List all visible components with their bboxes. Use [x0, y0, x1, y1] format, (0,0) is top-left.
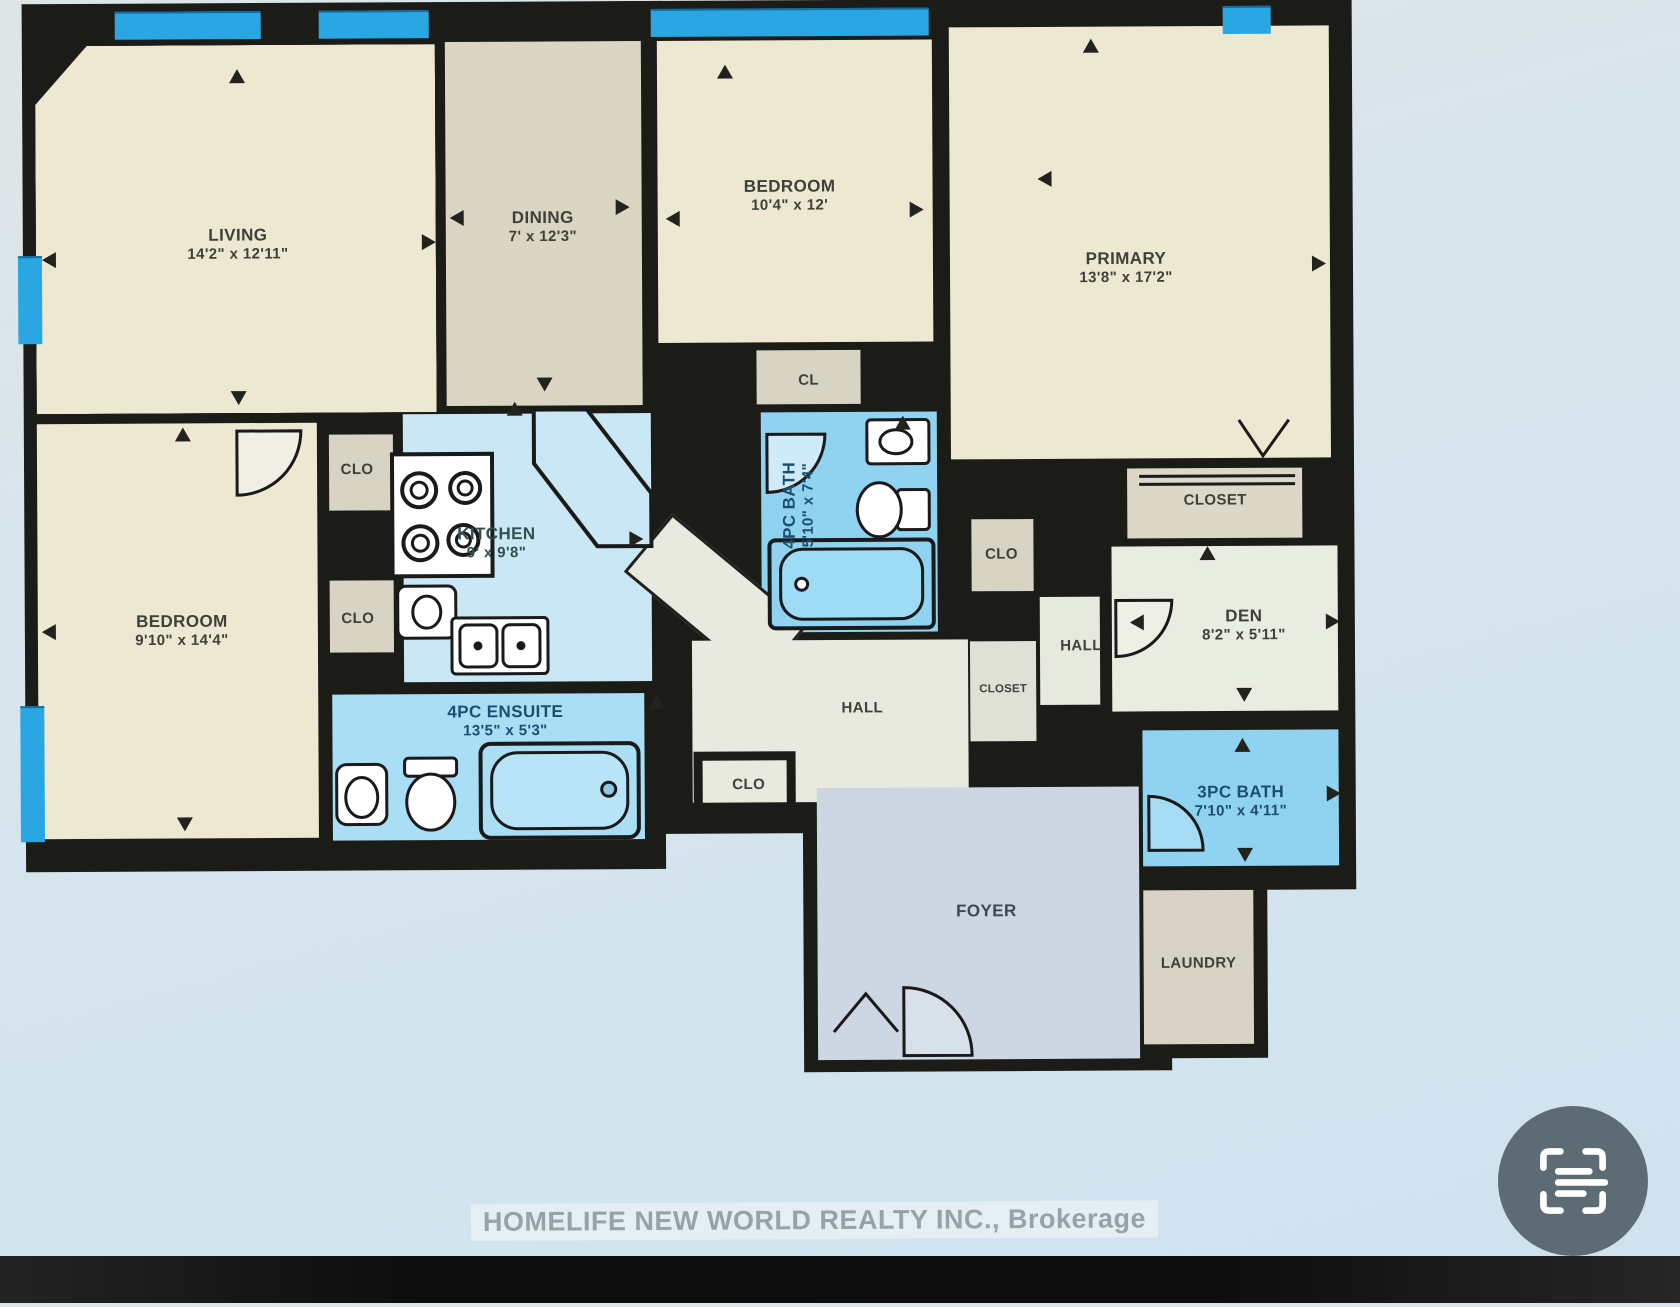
dimension-arrow: [537, 378, 553, 392]
dimension-arrow: [666, 211, 680, 227]
room-name: BEDROOM: [744, 176, 836, 197]
dimension-arrow: [42, 624, 56, 640]
room-name: HALL: [1060, 637, 1102, 654]
room-label-cl: CL: [798, 372, 819, 389]
dimension-arrow: [177, 817, 193, 831]
room-dims: 9' x 9'8": [457, 544, 535, 563]
room-name: HALL: [841, 699, 883, 716]
room-label-bath-4pc: 4PC BATH 5'10" x 7'4": [779, 462, 819, 549]
room-name: CLO: [732, 776, 765, 793]
dimension-arrow: [1237, 848, 1253, 862]
dimension-arrow: [910, 202, 924, 218]
room-dims: 9'10" x 14'4": [135, 632, 228, 651]
screenshot-root: { "plan": { "rooms": { "living": {"name"…: [0, 0, 1680, 1303]
room-name: DEN: [1202, 606, 1286, 627]
floorplan-photo: LIVING 14'2" x 12'11" DINING 7' x 12'3" …: [0, 0, 1680, 1307]
room-dims: 10'4" x 12': [744, 197, 836, 216]
room-label-hall-center: HALL: [841, 699, 883, 716]
dimension-arrow: [1083, 39, 1099, 53]
room-dims: 14'2" x 12'11": [187, 246, 288, 265]
room-dims: 7' x 12'3": [509, 228, 577, 247]
room-primary: [949, 25, 1331, 459]
room-label-kitchen: KITCHEN 9' x 9'8": [457, 524, 536, 564]
room-label-foyer: FOYER: [956, 901, 1017, 921]
room-name: CLO: [341, 461, 374, 478]
dimension-arrow: [1234, 738, 1250, 752]
room-dims: 13'5" x 5'3": [447, 722, 563, 741]
room-label-living: LIVING 14'2" x 12'11": [187, 225, 288, 265]
room-name: FOYER: [956, 901, 1017, 921]
room-label-bedroom-left: BEDROOM 9'10" x 14'4": [135, 612, 229, 652]
room-label-den: DEN 8'2" x 5'11": [1202, 606, 1286, 646]
room-label-bedroom-top: BEDROOM 10'4" x 12': [744, 176, 836, 216]
room-label-primary: PRIMARY 13'8" x 17'2": [1079, 249, 1173, 289]
room-dims: 8'2" x 5'11": [1202, 626, 1286, 645]
watermark: HOMELIFE NEW WORLD REALTY INC., Brokerag…: [471, 1200, 1158, 1241]
room-name: BEDROOM: [135, 612, 228, 633]
dimension-arrow: [450, 210, 464, 226]
room-name: CLO: [985, 546, 1018, 563]
window-strip: [115, 11, 261, 40]
room-dims: 13'8" x 17'2": [1079, 269, 1172, 288]
dimension-arrow: [507, 402, 523, 416]
room-name: CLO: [341, 610, 374, 627]
room-name: CL: [798, 372, 819, 389]
window-strip: [651, 8, 929, 37]
room-label-clo-kitchen-lower: CLO: [341, 610, 374, 627]
room-dims: 5'10" x 7'4": [800, 462, 819, 549]
dimension-arrow: [42, 252, 56, 268]
dimension-arrow: [229, 69, 245, 83]
room-label-closet-primary: CLOSET: [1184, 491, 1247, 508]
room-foyer: [817, 786, 1140, 1060]
dimension-arrow: [717, 65, 733, 79]
room-name: CLOSET: [1184, 491, 1247, 508]
dimension-arrow: [1199, 546, 1215, 560]
dimension-arrow: [175, 427, 191, 441]
dimension-arrow: [231, 391, 247, 405]
room-name: 4PC ENSUITE: [447, 702, 563, 723]
dimension-arrow: [1037, 171, 1051, 187]
window-strip: [20, 706, 45, 842]
room-name: LAUNDRY: [1161, 954, 1237, 971]
room-label-laundry: LAUNDRY: [1161, 954, 1237, 971]
dimension-arrow: [1326, 613, 1340, 629]
window-strip: [319, 10, 429, 39]
window-strip: [18, 256, 42, 344]
room-name: PRIMARY: [1079, 249, 1172, 270]
room-name: 4PC BATH: [779, 462, 800, 549]
dimension-arrow: [1312, 255, 1326, 271]
room-label-ensuite-4pc: 4PC ENSUITE 13'5" x 5'3": [447, 702, 563, 742]
room-label-clo-right: CLO: [985, 546, 1018, 563]
room-label-bath-3pc: 3PC BATH 7'10" x 4'11": [1194, 782, 1287, 822]
room-name: LIVING: [187, 225, 288, 246]
room-label-closet-hall: CLOSET: [979, 683, 1027, 695]
dimension-arrow: [422, 234, 436, 250]
dimension-arrow: [616, 199, 630, 215]
room-label-clo-hall: CLO: [732, 776, 765, 793]
room-label-dining: DINING 7' x 12'3": [509, 208, 578, 247]
room-name: CLOSET: [979, 683, 1027, 695]
room-label-hall-right: HALL: [1060, 637, 1102, 654]
room-dims: 7'10" x 4'11": [1195, 802, 1288, 821]
dimension-arrow: [895, 416, 911, 430]
window-strip: [1223, 6, 1271, 34]
room-name: DINING: [509, 208, 577, 229]
room-name: KITCHEN: [457, 524, 535, 545]
bottom-bar: [0, 1256, 1680, 1303]
live-text-icon: [1536, 1144, 1610, 1218]
room-label-clo-kitchen-upper: CLO: [341, 461, 374, 478]
dimension-arrow: [648, 695, 664, 709]
live-text-button[interactable]: [1498, 1106, 1648, 1256]
dimension-arrow: [629, 531, 643, 547]
dimension-arrow: [1236, 688, 1252, 702]
dimension-arrow: [1327, 785, 1341, 801]
room-name: 3PC BATH: [1194, 782, 1287, 803]
dimension-arrow: [1130, 614, 1144, 630]
